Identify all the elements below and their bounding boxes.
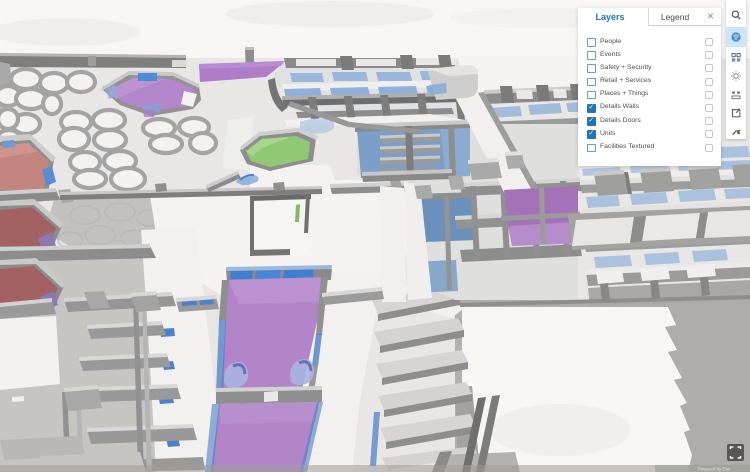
- svg-text:Powered by Esri: Powered by Esri: [698, 467, 730, 472]
